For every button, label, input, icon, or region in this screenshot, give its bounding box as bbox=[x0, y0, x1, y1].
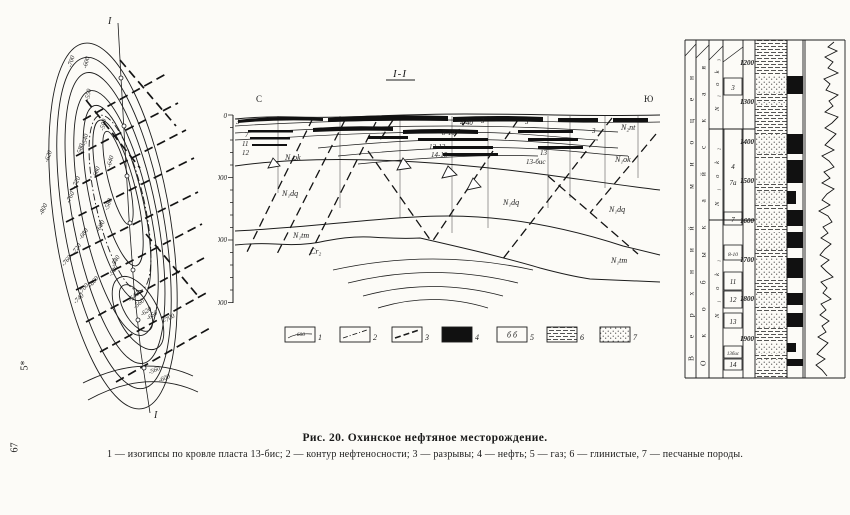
legend-item-oil-contour bbox=[340, 327, 370, 342]
bed-number: 7а bbox=[730, 179, 738, 187]
bed-label: 7 bbox=[245, 131, 249, 139]
bed-number: 7 bbox=[731, 216, 735, 224]
depth-tick-label: 3000 bbox=[218, 299, 228, 307]
figure-caption-legend: 1 — изогипсы по кровле пласта 13-бис; 2 … bbox=[0, 449, 850, 460]
contour-label: -550 bbox=[84, 88, 93, 102]
bed-number: 14 bbox=[730, 361, 738, 369]
depth-label: 1200 bbox=[740, 59, 755, 67]
bed-number: 13бис bbox=[727, 352, 740, 357]
legend-numbers: 1 2 3 4 5 6 7 bbox=[318, 333, 638, 342]
cr2-arcs bbox=[333, 259, 533, 308]
contour-label: -720 bbox=[71, 175, 83, 189]
legend-item-clay bbox=[547, 327, 577, 342]
structure-map: I I -700 -600 -550 -500 -540 -580 -620 -… bbox=[28, 8, 220, 433]
formation-label: N₁dq bbox=[281, 189, 298, 198]
oil-intervals bbox=[787, 76, 803, 366]
legend-item-oil bbox=[442, 327, 472, 342]
map-section-mark-top: I bbox=[107, 16, 112, 27]
bed-label: 3 bbox=[591, 127, 596, 135]
depth-tick-label: 2000 bbox=[218, 236, 228, 244]
bed-label: 8-10 bbox=[442, 129, 455, 137]
section-title: I-I bbox=[392, 68, 407, 80]
formation-label: N₁tm bbox=[610, 256, 627, 265]
bed-label: 13 bbox=[540, 149, 548, 157]
legend-number: 3 bbox=[424, 333, 429, 342]
legend-gas-symbol: б б bbox=[507, 331, 518, 340]
contour-label: -680 bbox=[77, 227, 90, 241]
map-section-mark-bottom: I bbox=[153, 410, 158, 421]
contour-label: -640 bbox=[106, 154, 116, 168]
bed-label: 11 bbox=[242, 140, 248, 148]
contour-label: -580 bbox=[103, 197, 114, 211]
bed-number: 11 bbox=[730, 278, 736, 286]
legend-number: 1 bbox=[318, 333, 322, 342]
depth-tick-label: 0 bbox=[224, 112, 228, 120]
depth-label: 1900 bbox=[740, 335, 755, 343]
north-label: С bbox=[256, 94, 262, 104]
well-log-curve bbox=[816, 42, 838, 376]
bed-label: 3 bbox=[480, 117, 485, 125]
legend-number: 6 bbox=[580, 333, 584, 342]
figure-caption-title: Рис. 20. Охинское нефтяное месторождение… bbox=[0, 432, 850, 444]
formation-labels: N₁ok N₁dq N₁tm Cr₂ N₁dq N₂nt N₁ok N₁dq N… bbox=[281, 123, 636, 265]
bed-label: 14-15 bbox=[431, 151, 448, 159]
formation-label: N₁tm bbox=[292, 231, 309, 240]
bed-label: 13-бис bbox=[526, 158, 546, 166]
horizon-labels: N₁ok₃ N₁ok₂ N₁ok₁ bbox=[714, 59, 721, 319]
horizon-label: N₁ok₂ bbox=[714, 147, 721, 207]
thrust-marks bbox=[268, 158, 481, 190]
depth-label: 1800 bbox=[740, 295, 755, 303]
map-faults bbox=[66, 60, 210, 382]
formation-label: N₁dq bbox=[608, 205, 625, 214]
bed-number: 12 bbox=[730, 296, 738, 304]
depth-label: 1500 bbox=[740, 177, 755, 185]
legend-item-faults bbox=[392, 327, 422, 342]
contour-label: -720 bbox=[70, 242, 83, 256]
contour-label: -600 bbox=[95, 219, 107, 233]
depth-tick-label: 1000 bbox=[218, 174, 228, 182]
strat-column: 3 4 7а 7 8-10 11 12 13 13бис 14 1200 130… bbox=[683, 36, 848, 386]
lithology-bands bbox=[756, 40, 787, 378]
contour-label: -500 bbox=[99, 118, 108, 132]
formation-label: N₁ok bbox=[614, 155, 631, 164]
legend-number: 4 bbox=[475, 333, 479, 342]
map-contours bbox=[28, 34, 199, 418]
cross-section: I-I С Ю 0 1000 2000 3000 bbox=[218, 58, 678, 315]
bed-number: 13 bbox=[730, 318, 738, 326]
bed-label: 12-13 bbox=[429, 143, 446, 151]
formation-label: N₁ok bbox=[284, 153, 301, 162]
contour-label: -700 bbox=[67, 54, 77, 68]
bed-number: 8-10 bbox=[728, 252, 738, 258]
depth-label: 1600 bbox=[740, 217, 755, 225]
depth-label: 1300 bbox=[740, 98, 755, 106]
bed-numbers: 3 4 7а 7 8-10 11 12 13 13бис 14 bbox=[727, 84, 740, 369]
formation-label: N₂nt bbox=[620, 123, 636, 132]
legend-isohypse-value: -600 bbox=[295, 332, 305, 338]
depth-axis bbox=[228, 115, 233, 303]
bed-label: 3 bbox=[235, 118, 240, 126]
contour-label: -800 bbox=[38, 202, 50, 216]
legend-number: 2 bbox=[373, 333, 377, 342]
legend: -600 б б 1 2 3 4 5 6 7 bbox=[272, 320, 652, 354]
scanned-book-page: 5* 67 bbox=[0, 0, 850, 515]
legend-item-sand bbox=[600, 327, 630, 342]
era-label: Верхний миоцен bbox=[687, 76, 696, 361]
bed-number: 4 bbox=[731, 163, 735, 171]
contour-label: -760 bbox=[65, 190, 77, 204]
depth-axis-labels: 0 1000 2000 3000 bbox=[218, 112, 228, 307]
bed-number: 3 bbox=[730, 84, 735, 92]
suite-label: Окобыкайская bbox=[699, 65, 708, 366]
depth-label: 1400 bbox=[740, 138, 755, 146]
bed-label: 12 bbox=[242, 149, 250, 157]
horizon-label: N₁ok₁ bbox=[714, 260, 721, 319]
formation-label: Cr₂ bbox=[310, 247, 321, 256]
map-oil-contour bbox=[76, 110, 163, 296]
map-contour-labels: -700 -600 -550 -500 -540 -580 -620 -640 … bbox=[38, 54, 177, 384]
contour-label: -620 bbox=[43, 149, 54, 163]
bed-label: 4-40 bbox=[460, 119, 473, 127]
south-label: Ю bbox=[644, 94, 653, 104]
formation-label: N₁dq bbox=[502, 198, 519, 207]
legend-number: 5 bbox=[530, 333, 534, 342]
legend-number: 7 bbox=[633, 333, 638, 342]
horizon-label: N₁ok₃ bbox=[714, 59, 721, 112]
depth-label: 1700 bbox=[740, 256, 755, 264]
bed-label: 3 bbox=[524, 118, 529, 126]
contour-label: -680 bbox=[91, 165, 102, 179]
